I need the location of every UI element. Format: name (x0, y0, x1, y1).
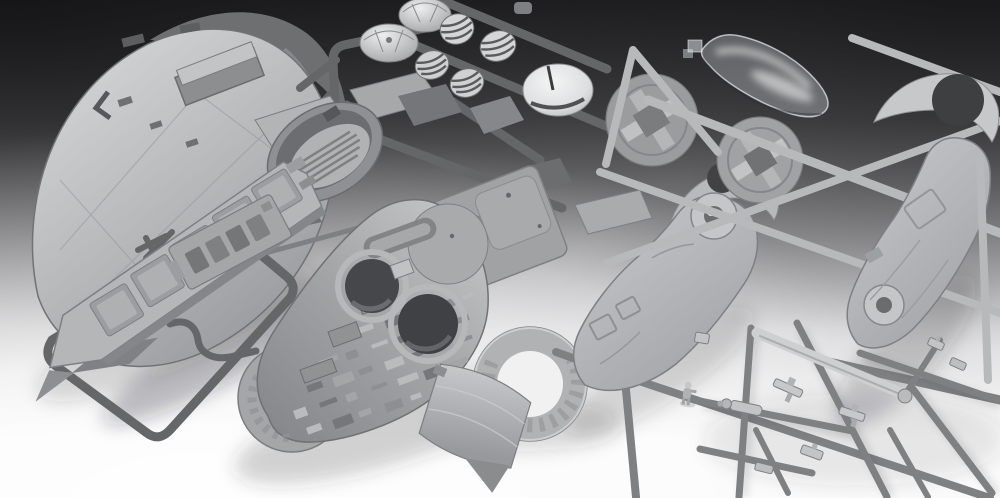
radar-dish-dome (523, 64, 593, 116)
runner-node (514, 2, 532, 14)
small-part (694, 332, 710, 344)
crescent-notch (932, 74, 984, 126)
photo-canvas (0, 0, 1000, 498)
tube-nozzle (898, 389, 912, 403)
dome-part (360, 24, 418, 62)
part-body (694, 332, 710, 344)
dome-nub (386, 37, 392, 43)
model-kit-photo (0, 0, 1000, 498)
canopy-clip (683, 49, 693, 58)
rivet (450, 234, 454, 238)
hull-round-deck (408, 204, 488, 284)
dome-fitting-core (876, 297, 892, 313)
